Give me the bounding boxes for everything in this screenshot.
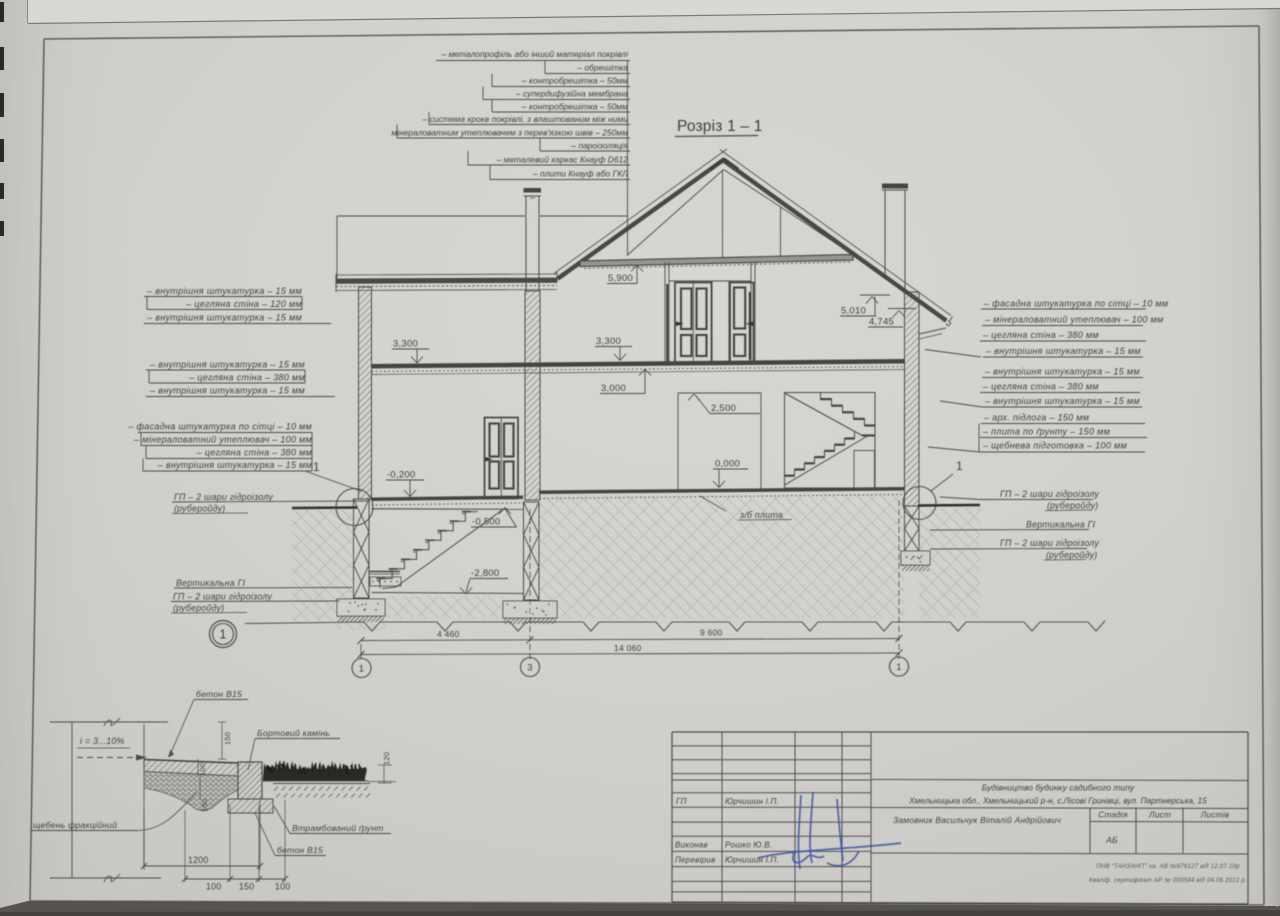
svg-text:– внутрішня штукатурка – 15 мм: – внутрішня штукатурка – 15 мм	[146, 286, 302, 296]
svg-text:– цегляна стіна – 380 мм: – цегляна стіна – 380 мм	[982, 330, 1099, 340]
svg-text:Втрамбований ґрунт: Втрамбований ґрунт	[292, 823, 384, 833]
svg-text:(руберойду): (руберойду)	[174, 504, 225, 514]
svg-text:150: 150	[239, 882, 254, 892]
svg-text:АБ: АБ	[1105, 835, 1118, 845]
svg-text:150: 150	[200, 799, 209, 812]
svg-text:– контробрешітка – 50мм: – контробрешітка – 50мм	[521, 76, 628, 86]
svg-text:ГП – 2 шари гідроізолу: ГП – 2 шари гідроізолу	[1000, 489, 1099, 499]
svg-text:– металопрофіль або інший мате: – металопрофіль або інший матеріал покрі…	[440, 49, 629, 59]
svg-text:– фасадна штукатурка по сітці: – фасадна штукатурка по сітці – 10 мм	[983, 299, 1168, 309]
svg-text:ПНВ “ТАНЗАНІТ” кв. АВ №976127: ПНВ “ТАНЗАНІТ” кв. АВ №976127 від 12.07.…	[1096, 863, 1240, 870]
svg-text:– контробрешітка – 50мм: – контробрешітка – 50мм	[521, 102, 628, 112]
svg-text:Листів: Листів	[1200, 811, 1230, 820]
svg-text:4 460: 4 460	[437, 629, 460, 639]
svg-text:– пароізоляція: – пароізоляція	[570, 141, 628, 151]
svg-text:2,500: 2,500	[711, 403, 736, 414]
svg-text:Юрчишин І.П.: Юрчишин І.П.	[725, 856, 779, 865]
svg-text:-2,800: -2,800	[471, 568, 499, 579]
svg-text:100: 100	[275, 882, 290, 892]
svg-text:ГП – 2 шари гідроізолу: ГП – 2 шари гідроізолу	[1000, 538, 1099, 548]
svg-text:5,010: 5,010	[841, 306, 866, 317]
svg-text:– плити Кнауф або ГКЛ: – плити Кнауф або ГКЛ	[532, 169, 628, 179]
svg-text:– цегляна стіна – 380 мм: – цегляна стіна – 380 мм	[188, 373, 305, 383]
svg-text:ГП – 2 шари гідроізолу: ГП – 2 шари гідроізолу	[174, 492, 273, 502]
svg-text:– фасадна штукатурка по сітці: – фасадна штукатурка по сітці – 10 мм	[127, 422, 312, 432]
svg-text:120: 120	[382, 752, 391, 765]
svg-text:14 060: 14 060	[614, 643, 642, 653]
svg-text:100: 100	[206, 882, 221, 892]
svg-text:3,000: 3,000	[601, 383, 626, 394]
svg-text:1: 1	[219, 628, 226, 642]
svg-text:– щебнева підготовка – 100 мм: – щебнева підготовка – 100 мм	[982, 441, 1127, 451]
svg-text:1: 1	[359, 663, 365, 674]
svg-text:– цегляна стіна – 120 мм: – цегляна стіна – 120 мм	[185, 299, 302, 309]
svg-text:бетон В15: бетон В15	[196, 689, 242, 699]
svg-text:щебень фракційний: щебень фракційний	[33, 820, 117, 830]
svg-text:– внутрішня штукатурка – 15 мм: – внутрішня штукатурка – 15 мм	[146, 313, 302, 323]
svg-text:(руберойду): (руберойду)	[1046, 550, 1097, 560]
svg-text:3: 3	[527, 662, 533, 673]
svg-text:– система крокв покрівлі, з вл: – система крокв покрівлі, з влаштованим …	[422, 114, 629, 124]
svg-text:– внутрішня штукатурка – 15 мм: – внутрішня штукатурка – 15 мм	[149, 386, 305, 396]
svg-text:4,745: 4,745	[869, 317, 894, 328]
svg-text:1200: 1200	[188, 855, 209, 865]
svg-text:– супердифузійна мембрана: – супердифузійна мембрана	[515, 89, 628, 99]
svg-text:Рошко Ю.В.: Рошко Ю.В.	[725, 841, 772, 850]
svg-text:Кваліф. сертифікат АР № 000584: Кваліф. сертифікат АР № 000584 від 04.06…	[1089, 877, 1247, 884]
svg-text:– цегляна стіна – 380 мм: – цегляна стіна – 380 мм	[196, 448, 312, 458]
svg-text:3,300: 3,300	[393, 339, 418, 350]
svg-text:0,000: 0,000	[715, 459, 740, 470]
svg-text:-0,500: -0,500	[472, 517, 500, 528]
svg-text:ГП: ГП	[676, 797, 687, 806]
svg-text:мінераловатним утеплювачем з п: мінераловатним утеплювачем з перев'язкою…	[391, 128, 628, 138]
svg-text:(руберойду): (руберойду)	[1047, 501, 1098, 511]
svg-text:3,300: 3,300	[596, 336, 621, 347]
svg-text:– внутрішня штукатурка – 15 мм: – внутрішня штукатурка – 15 мм	[157, 460, 312, 470]
svg-text:– плита по ґрунту – 150 мм: – плита по ґрунту – 150 мм	[982, 427, 1110, 437]
svg-text:150: 150	[223, 732, 232, 745]
svg-text:– внутрішня штукатурка – 15 мм: – внутрішня штукатурка – 15 мм	[149, 360, 305, 370]
svg-text:1: 1	[896, 662, 902, 673]
svg-text:– цегляна стіна – 380 мм: – цегляна стіна – 380 мм	[982, 382, 1099, 392]
svg-text:Вертикальна ГІ: Вертикальна ГІ	[1026, 520, 1096, 530]
svg-text:9 600: 9 600	[700, 628, 723, 638]
svg-text:5,900: 5,900	[608, 273, 633, 284]
svg-text:– арх. підлога – 150 мм: – арх. підлога – 150 мм	[983, 413, 1089, 423]
svg-text:Хмельницька обл., Хмельницьки: Хмельницька обл., Хмельницький р-н, с.Лі…	[908, 797, 1207, 806]
svg-text:– внутрішня штукатурка – 15 мм: – внутрішня штукатурка – 15 мм	[984, 367, 1140, 377]
svg-text:бетон В15: бетон В15	[277, 845, 323, 855]
svg-text:Юрчишин І.П.: Юрчишин І.П.	[725, 797, 779, 806]
svg-text:– мінераловатний утеплювач – 1: – мінераловатний утеплювач – 100 мм	[984, 315, 1164, 325]
svg-text:– металевий каркас Кнауф D612: – металевий каркас Кнауф D612	[496, 155, 629, 165]
svg-text:i = 3...10%: i = 3...10%	[80, 736, 125, 746]
svg-text:Виконав: Виконав	[675, 841, 708, 850]
svg-text:Лист: Лист	[1148, 811, 1171, 820]
svg-text:– внутрішня штукатурка – 15 мм: – внутрішня штукатурка – 15 мм	[984, 396, 1140, 406]
svg-text:1: 1	[313, 460, 320, 474]
svg-text:– обрешітка: – обрешітка	[576, 63, 628, 73]
svg-text:– внутрішня штукатурка – 15 мм: – внутрішня штукатурка – 15 мм	[985, 346, 1141, 356]
svg-text:Перевірив: Перевірив	[675, 856, 715, 865]
svg-text:100: 100	[198, 763, 207, 776]
svg-text:з/б плита: з/б плита	[739, 510, 783, 520]
svg-text:– мінераловатний утеплювач – 1: – мінераловатний утеплювач – 100 мм	[133, 435, 312, 445]
svg-text:(руберойду): (руберойду)	[173, 603, 224, 613]
svg-text:-0,200: -0,200	[387, 470, 415, 481]
svg-text:Розріз 1 – 1: Розріз 1 – 1	[677, 118, 763, 135]
svg-text:Вертикальна ГІ: Вертикальна ГІ	[176, 578, 246, 588]
svg-text:Будівництво будинку садибного: Будівництво будинку садибного типу	[982, 783, 1135, 793]
svg-text:Бортовий камінь: Бортовий камінь	[257, 728, 330, 738]
svg-text:ГП – 2 шари гідроізолу: ГП – 2 шари гідроізолу	[173, 592, 272, 602]
svg-text:1: 1	[956, 459, 963, 473]
svg-text:Замовник Васильчук Віталій А: Замовник Васильчук Віталій Андрійович	[893, 815, 1062, 825]
svg-text:Стадія: Стадія	[1098, 811, 1128, 820]
